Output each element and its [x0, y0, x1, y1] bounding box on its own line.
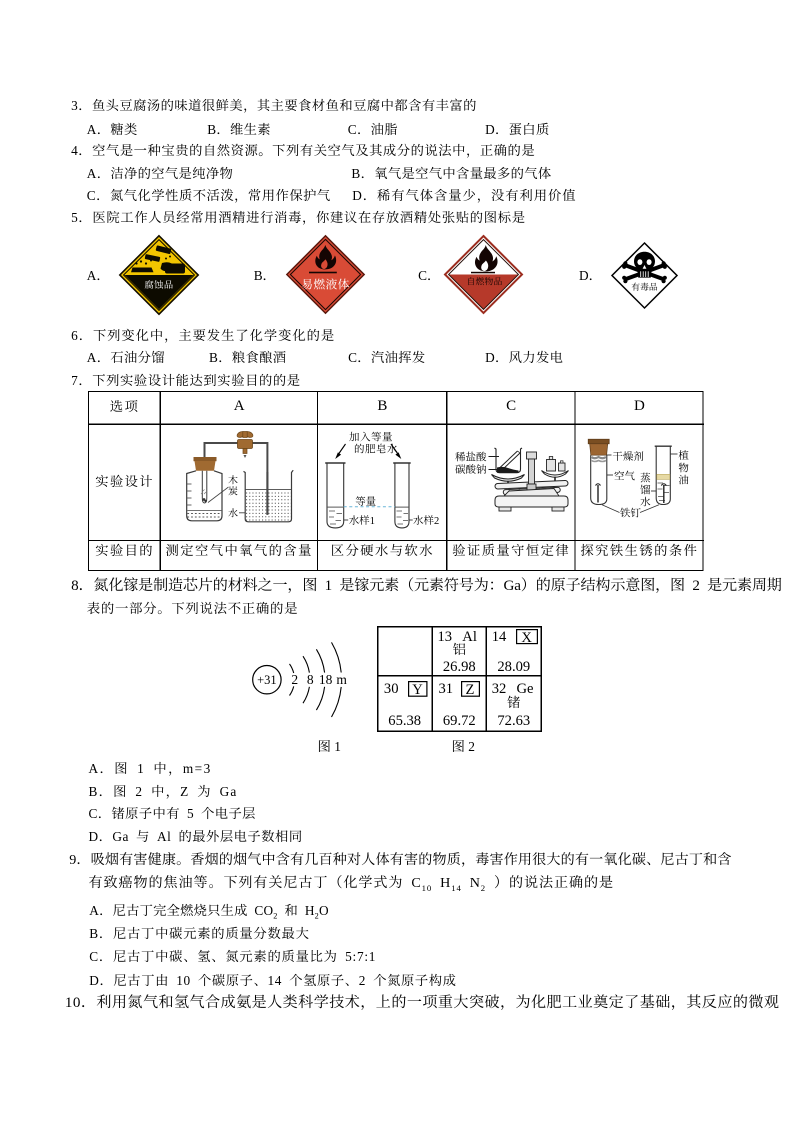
svg-text:2: 2 [291, 672, 298, 687]
svg-text:+31: +31 [257, 673, 277, 687]
svg-text:干燥剂: 干燥剂 [613, 449, 645, 464]
svg-text:m: m [336, 672, 347, 687]
svg-text:有毒品: 有毒品 [631, 280, 658, 293]
svg-text:空气: 空气 [614, 468, 635, 483]
svg-text:水样1: 水样1 [348, 513, 374, 528]
svg-text:自燃物品: 自燃物品 [466, 274, 502, 287]
svg-text:水: 水 [228, 505, 238, 520]
svg-text:炭: 炭 [228, 483, 238, 498]
svg-text:8: 8 [307, 672, 314, 687]
svg-text:腐蚀品: 腐蚀品 [144, 277, 173, 291]
svg-text:易燃液体: 易燃液体 [301, 275, 349, 292]
svg-text:水: 水 [640, 495, 651, 510]
svg-text:铁钉: 铁钉 [620, 506, 641, 521]
svg-text:18: 18 [319, 672, 333, 687]
svg-text:水样2: 水样2 [413, 513, 439, 528]
svg-text:油: 油 [679, 472, 690, 487]
svg-text:碳酸钠: 碳酸钠 [455, 462, 487, 477]
